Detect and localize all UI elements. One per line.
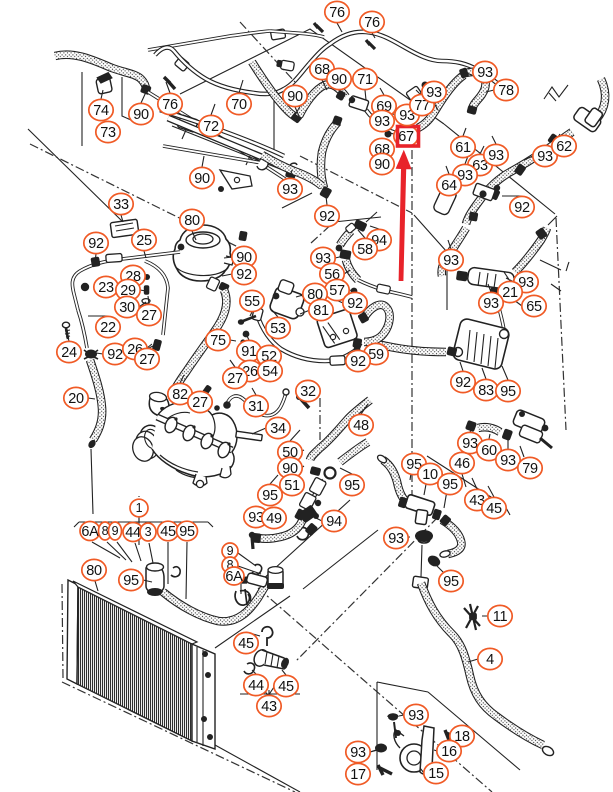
svg-text:11: 11 <box>493 609 508 625</box>
svg-text:45: 45 <box>160 524 176 540</box>
svg-text:92: 92 <box>347 296 363 312</box>
svg-text:27: 27 <box>139 352 155 368</box>
svg-text:8: 8 <box>102 524 109 538</box>
svg-text:93: 93 <box>483 296 499 312</box>
svg-text:31: 31 <box>248 399 264 415</box>
svg-text:4: 4 <box>486 652 494 668</box>
svg-text:17: 17 <box>350 767 366 783</box>
svg-text:93: 93 <box>537 149 553 165</box>
svg-text:6A: 6A <box>81 524 99 540</box>
svg-text:61: 61 <box>455 140 471 156</box>
svg-text:49: 49 <box>266 511 282 527</box>
svg-text:27: 27 <box>192 395 208 411</box>
svg-text:81: 81 <box>313 303 329 319</box>
svg-text:90: 90 <box>374 157 390 173</box>
svg-text:64: 64 <box>441 178 457 194</box>
svg-text:53: 53 <box>270 321 286 337</box>
svg-text:9: 9 <box>227 544 234 558</box>
svg-text:95: 95 <box>500 384 516 400</box>
svg-text:62: 62 <box>556 139 572 155</box>
svg-text:93: 93 <box>282 182 298 198</box>
svg-text:25: 25 <box>136 233 152 249</box>
svg-text:10: 10 <box>422 467 438 483</box>
svg-text:82: 82 <box>172 387 188 403</box>
svg-text:6A: 6A <box>225 569 243 585</box>
svg-text:33: 33 <box>113 197 129 213</box>
svg-text:16: 16 <box>441 744 457 760</box>
svg-text:92: 92 <box>88 236 104 252</box>
svg-text:21: 21 <box>502 285 518 301</box>
svg-text:48: 48 <box>353 418 369 434</box>
svg-text:93: 93 <box>477 65 493 81</box>
svg-text:67: 67 <box>398 129 414 145</box>
svg-text:24: 24 <box>61 345 77 361</box>
svg-text:90: 90 <box>194 171 210 187</box>
svg-text:93: 93 <box>374 114 390 130</box>
svg-text:43: 43 <box>261 699 277 715</box>
svg-text:92: 92 <box>107 347 123 363</box>
svg-text:73: 73 <box>100 125 116 141</box>
svg-text:92: 92 <box>455 375 471 391</box>
svg-text:95: 95 <box>262 488 278 504</box>
svg-text:94: 94 <box>326 514 342 530</box>
svg-text:93: 93 <box>500 453 516 469</box>
svg-text:93: 93 <box>443 253 459 269</box>
svg-text:80: 80 <box>184 213 200 229</box>
svg-text:60: 60 <box>481 443 497 459</box>
svg-text:93: 93 <box>408 708 424 724</box>
svg-text:76: 76 <box>329 5 345 21</box>
svg-text:15: 15 <box>428 766 444 782</box>
svg-text:65: 65 <box>526 299 542 315</box>
svg-text:55: 55 <box>244 294 260 310</box>
svg-text:3: 3 <box>145 525 152 539</box>
svg-text:74: 74 <box>93 103 109 119</box>
svg-text:90: 90 <box>331 72 347 88</box>
svg-text:34: 34 <box>270 421 286 437</box>
svg-text:79: 79 <box>522 461 538 477</box>
svg-text:95: 95 <box>442 477 458 493</box>
svg-text:95: 95 <box>123 573 139 589</box>
svg-text:51: 51 <box>284 478 300 494</box>
svg-text:78: 78 <box>498 83 514 99</box>
svg-text:45: 45 <box>238 636 254 652</box>
svg-text:54: 54 <box>262 364 278 380</box>
svg-text:44: 44 <box>125 525 141 541</box>
svg-text:83: 83 <box>478 383 494 399</box>
svg-text:92: 92 <box>236 267 252 283</box>
svg-text:95: 95 <box>443 574 459 590</box>
svg-text:95: 95 <box>179 524 195 540</box>
svg-text:91: 91 <box>241 344 257 360</box>
svg-text:75: 75 <box>210 333 226 349</box>
svg-text:9: 9 <box>112 524 119 538</box>
svg-text:93: 93 <box>462 436 478 452</box>
svg-text:71: 71 <box>357 72 373 88</box>
svg-text:27: 27 <box>141 308 157 324</box>
svg-text:93: 93 <box>488 148 504 164</box>
svg-text:45: 45 <box>486 501 502 517</box>
svg-text:70: 70 <box>231 97 247 113</box>
svg-text:45: 45 <box>278 679 294 695</box>
svg-text:22: 22 <box>100 320 116 336</box>
svg-text:44: 44 <box>248 678 264 694</box>
svg-text:58: 58 <box>357 242 373 258</box>
svg-text:57: 57 <box>329 283 345 299</box>
svg-text:80: 80 <box>86 563 102 579</box>
svg-text:92: 92 <box>319 209 335 225</box>
svg-text:32: 32 <box>300 384 316 400</box>
svg-text:1: 1 <box>136 501 143 515</box>
svg-text:46: 46 <box>454 456 470 472</box>
svg-text:20: 20 <box>68 391 84 407</box>
svg-text:30: 30 <box>119 300 135 316</box>
svg-text:92: 92 <box>350 354 366 370</box>
svg-text:93: 93 <box>426 85 442 101</box>
svg-text:76: 76 <box>162 97 178 113</box>
svg-text:76: 76 <box>364 15 380 31</box>
svg-text:92: 92 <box>514 200 530 216</box>
svg-text:93: 93 <box>388 531 404 547</box>
svg-text:27: 27 <box>227 371 243 387</box>
svg-text:95: 95 <box>344 478 360 494</box>
svg-text:90: 90 <box>287 89 303 105</box>
svg-text:93: 93 <box>350 745 366 761</box>
svg-text:23: 23 <box>98 280 114 296</box>
svg-text:90: 90 <box>133 107 149 123</box>
svg-text:72: 72 <box>203 119 219 135</box>
